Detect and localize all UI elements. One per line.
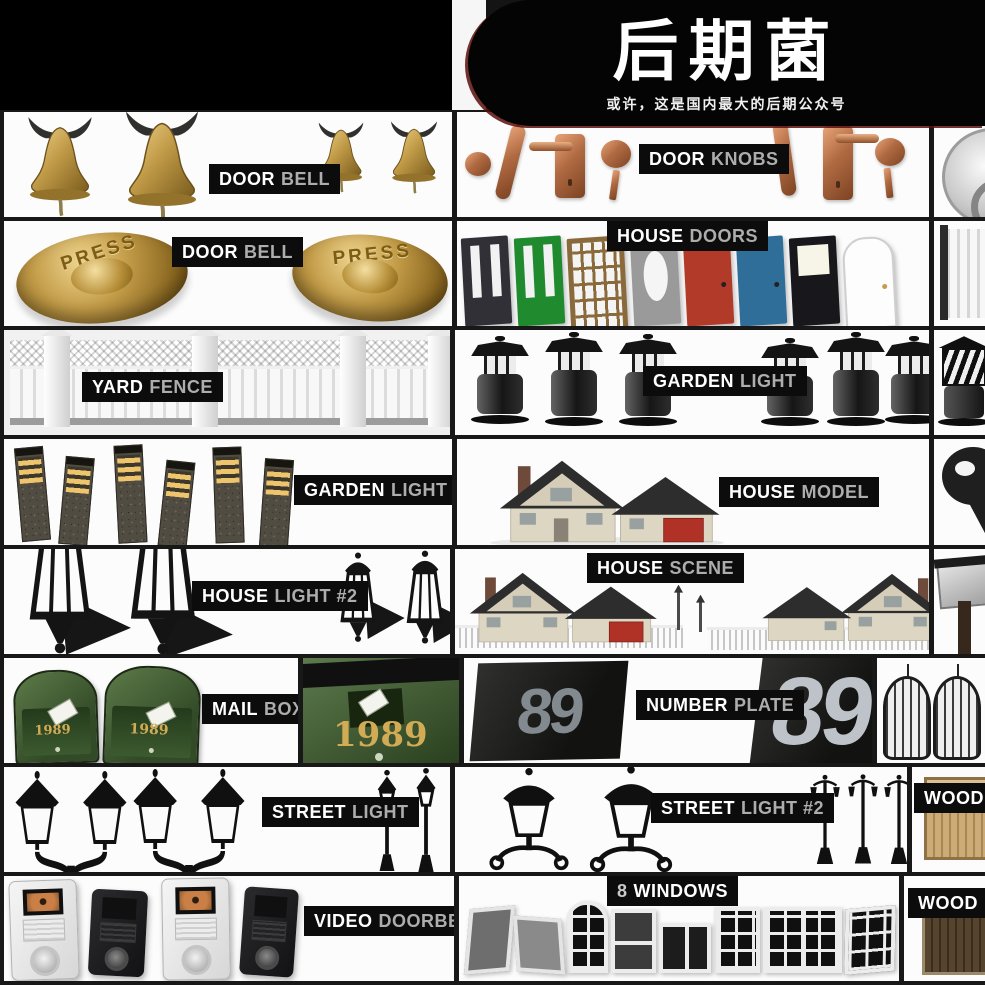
label-light: BELL xyxy=(281,169,330,189)
row-2: PRESS DOORBELL PRESS xyxy=(4,221,985,326)
double-head-post-graphic xyxy=(881,769,907,869)
label-light: LIGHT #3 xyxy=(391,480,452,500)
cell-garden-light: GARDENLIGHT xyxy=(455,330,929,435)
label-house-doors: HOUSEDOORS xyxy=(607,221,768,251)
label-house-scene: HOUSESCENE xyxy=(587,553,744,583)
row-3: YARDFENCE GARDENLIGHT xyxy=(4,330,985,435)
key-graphic xyxy=(609,170,620,201)
cell-mailbox-post-partial xyxy=(934,549,985,654)
house-model-graphic xyxy=(473,441,741,544)
fence-post-cap xyxy=(336,330,370,336)
doorbell-button xyxy=(104,946,129,971)
press-doorbell-graphic: PRESS xyxy=(12,224,192,326)
cell-door-bell-press: PRESS DOORBELL PRESS xyxy=(4,221,452,326)
label-strong: HOUSE xyxy=(597,558,664,578)
label-wooden-gate: WOOD xyxy=(908,888,985,918)
mailbox-keyhole xyxy=(149,748,154,753)
door-knob-graphic xyxy=(465,152,491,176)
cell-house-key-partial xyxy=(934,439,985,544)
knocker-ring xyxy=(971,179,985,217)
cell-video-doorbell: VIDEODOORBELL xyxy=(4,876,454,981)
doorbell-eye-display xyxy=(179,891,212,910)
label-video-doorbell: VIDEODOORBELL xyxy=(304,906,454,936)
garden-bollard-graphic xyxy=(545,332,603,426)
cell-street-light: STREETLIGHT xyxy=(4,767,450,872)
cell-wooden-fence-partial: WOODE xyxy=(912,767,985,872)
page-subtitle: 或许，这是国内最大的后期公众号 xyxy=(607,94,847,114)
label-strong: DOOR xyxy=(219,169,275,189)
mailbox-lid xyxy=(303,658,459,688)
mailbox-keyhole xyxy=(55,747,60,752)
door-handle-dot xyxy=(774,282,779,287)
ornate-lantern-graphic xyxy=(483,767,575,872)
door-rose-graphic xyxy=(875,138,905,166)
label-8-windows: 8WINDOWS xyxy=(607,876,738,906)
door-knocker-graphic xyxy=(942,128,985,217)
label-mail-box: MAILBOX xyxy=(202,694,298,724)
label-door-bell: DOORBELL xyxy=(209,164,340,194)
window-mullion xyxy=(801,911,806,969)
label-strong: YARD xyxy=(92,377,143,397)
hanging-bell-graphic xyxy=(112,112,212,217)
window-grid-double-wide xyxy=(763,907,842,973)
door-handle-dot xyxy=(721,282,726,287)
fence-post xyxy=(428,334,450,427)
cell-house-doors: HOUSEDOORS xyxy=(457,221,929,326)
video-doorbell-graphic xyxy=(239,886,299,978)
mailbox-year: 1989 xyxy=(34,722,71,738)
cell-wooden-gate-partial: WOOD xyxy=(904,876,985,981)
page-title: 后期菌 xyxy=(613,18,841,84)
press-doorbell-graphic: PRESS xyxy=(288,227,452,326)
cell-door-knobs: DOORKNOBS xyxy=(457,112,929,217)
video-doorbell-graphic xyxy=(161,877,231,980)
fence-post xyxy=(340,334,366,427)
label-garden-light: GARDENLIGHT xyxy=(643,366,807,396)
label-strong: STREET xyxy=(661,798,735,818)
cell-house-model: HOUSEMODEL xyxy=(457,439,929,544)
fence-boards xyxy=(10,366,444,420)
scene-lamp-post xyxy=(699,602,702,632)
cell-cage-lanterns-partial xyxy=(877,658,985,763)
doorbell-screen xyxy=(254,895,288,918)
label-door-knobs: DOORKNOBS xyxy=(639,144,789,174)
label-door-bell-press: DOORBELL xyxy=(172,237,303,267)
row-8: VIDEODOORBELL 8WINDOWS xyxy=(4,876,985,981)
cell-house-scene: HOUSESCENE xyxy=(455,549,929,654)
fence-post-cap xyxy=(424,330,450,336)
mailbox-graphic: 1989 xyxy=(12,668,99,763)
keyhole xyxy=(836,181,840,188)
label-strong: GARDEN xyxy=(304,480,385,500)
label-light: LIGHT #2 xyxy=(275,586,358,606)
mailbox-year-large: 1989 xyxy=(333,715,428,755)
label-light: LIGHT #2 xyxy=(741,798,824,818)
window-two-pane xyxy=(611,909,656,973)
video-doorbell-graphic xyxy=(88,888,148,977)
cell-yard-fence: YARDFENCE xyxy=(4,330,450,435)
cell-number-plate: 89 NUMBERPLATE 89 xyxy=(464,658,872,763)
street-lamp-graphic xyxy=(4,769,138,872)
number-plate-graphic: 89 xyxy=(470,660,629,761)
keyhole xyxy=(568,179,572,186)
doorbell-eye-display xyxy=(26,892,59,912)
row-7: STREETLIGHT xyxy=(4,767,985,872)
hanging-bell-graphic xyxy=(16,114,104,217)
label-light: DOORBELL xyxy=(379,911,454,931)
label-street-light-2: STREETLIGHT #2 xyxy=(651,793,834,823)
doorbell-grille xyxy=(100,922,137,943)
label-light: BELL xyxy=(244,242,293,262)
stone-bollard-graphic xyxy=(259,458,294,544)
window-panel-tilted xyxy=(513,915,566,974)
label-light: MODEL xyxy=(802,482,870,502)
fence-post xyxy=(44,334,70,427)
poster-canvas: 后期菌 或许，这是国内最大的后期公众号 DOORBELL xyxy=(0,0,985,985)
cell-garden-light-3: GARDENLIGHT #3 xyxy=(4,439,452,544)
label-strong: WINDOWS xyxy=(634,881,728,901)
window-lineup xyxy=(467,901,895,973)
plate-number: 89 xyxy=(515,678,584,743)
doorbell-button xyxy=(181,945,212,976)
cell-mail-box-closeup: 1989 xyxy=(303,658,459,763)
row-6: 1989 1989 MAILBOX 1989 xyxy=(4,658,985,763)
label-light: KNOBS xyxy=(711,149,779,169)
door-lever-graphic xyxy=(835,134,879,143)
key-graphic xyxy=(883,168,893,199)
door-dark-slotted xyxy=(461,236,512,327)
mailbox-year: 1989 xyxy=(129,721,169,738)
label-wooden-fence: WOODE xyxy=(914,783,985,813)
window-arched xyxy=(566,901,608,973)
label-strong: MAIL xyxy=(212,699,258,719)
cell-picket-gate-partial xyxy=(934,221,985,326)
stone-bollard-graphic xyxy=(113,445,147,544)
cell-mail-box: 1989 1989 MAILBOX xyxy=(4,658,298,763)
label-strong: HOUSE xyxy=(729,482,796,502)
scene-house-graphic xyxy=(755,554,929,650)
picket-gate-graphic xyxy=(940,229,985,318)
header-black-panel xyxy=(0,0,452,110)
label-strong: HOUSE xyxy=(202,586,269,606)
label-light: BOX xyxy=(264,699,298,719)
window-double-dark xyxy=(659,923,711,973)
hanging-bell-graphic xyxy=(382,118,446,196)
cell-street-light-2: STREETLIGHT #2 xyxy=(455,767,907,872)
mailbox-graphic: 1989 xyxy=(102,664,201,763)
label-yard-fence: YARDFENCE xyxy=(82,372,223,402)
label-light: PLATE xyxy=(734,695,794,715)
row-5: HOUSELIGHT #2 xyxy=(4,549,985,654)
label-strong: DOOR xyxy=(649,149,705,169)
door-green-slotted xyxy=(514,236,565,327)
door-lever-plate-graphic xyxy=(555,134,585,198)
stone-bollard-graphic xyxy=(158,460,196,544)
cell-door-knocker-partial xyxy=(934,112,985,217)
label-house-light-2: HOUSELIGHT #2 xyxy=(192,581,368,611)
doorbell-grille xyxy=(251,920,287,942)
doorbell-screen xyxy=(23,888,63,916)
cell-louver-bollards-partial xyxy=(934,330,985,435)
stone-bollard-graphic xyxy=(212,447,244,544)
mailbox-keyhole xyxy=(375,753,383,761)
label-street-light: STREETLIGHT xyxy=(262,797,419,827)
doorbell-screen xyxy=(102,897,137,919)
cell-windows: 8WINDOWS xyxy=(459,876,899,981)
wall-lantern-graphic xyxy=(388,549,450,653)
garden-bollard-graphic xyxy=(827,332,885,426)
label-light: LIGHT xyxy=(352,802,409,822)
window-panel-tilted xyxy=(464,905,515,975)
doorbell-button xyxy=(254,945,280,971)
cage-lantern-graphic xyxy=(883,676,931,760)
door-black-toplite xyxy=(789,236,840,327)
door-handle-dot xyxy=(882,284,887,289)
yard-fence-graphic xyxy=(10,340,444,425)
window-sash-bar xyxy=(615,941,652,945)
label-light: LIGHT xyxy=(740,371,797,391)
fence-base xyxy=(10,418,444,425)
label-strong: HOUSE xyxy=(617,226,684,246)
cell-door-bell-hanging: DOORBELL xyxy=(4,112,452,217)
label-strong: STREET xyxy=(272,802,346,822)
fence-post-cap xyxy=(188,330,222,336)
cell-house-light-2: HOUSELIGHT #2 xyxy=(4,549,450,654)
window-mullion xyxy=(685,927,689,969)
row-1: DOORBELL xyxy=(4,112,985,217)
label-partial: WOODE xyxy=(924,788,985,808)
mailbox-letter xyxy=(358,688,389,716)
label-light: SCENE xyxy=(670,558,735,578)
label-garden-light-3: GARDENLIGHT #3 xyxy=(294,475,452,505)
row-4: GARDENLIGHT #3 xyxy=(4,439,985,544)
label-strong: NUMBER xyxy=(646,695,728,715)
mailbox-pole xyxy=(958,601,971,654)
label-strong: VIDEO xyxy=(314,911,373,931)
doorbell-button xyxy=(30,945,61,976)
label-number-plate: NUMBERPLATE xyxy=(636,690,804,720)
label-house-model: HOUSEMODEL xyxy=(719,477,879,507)
door-rose-graphic xyxy=(601,140,631,168)
key-shaft xyxy=(965,489,985,544)
garden-bollard-graphic xyxy=(885,336,929,424)
street-lamp-graphic xyxy=(122,767,256,872)
header-badge: 后期菌 或许，这是国内最大的后期公众号 xyxy=(468,0,985,126)
window-grid-3x3 xyxy=(714,907,761,973)
label-prefix: 8 xyxy=(617,881,628,901)
louver-bollard-graphic xyxy=(938,336,985,426)
video-doorbell-graphic xyxy=(8,879,79,981)
garden-bollard-graphic xyxy=(471,336,529,424)
door-handle-graphic xyxy=(494,123,527,200)
window-grid-tilted xyxy=(844,905,895,975)
doorbell-grille xyxy=(23,919,65,942)
doorbell-screen xyxy=(175,887,215,915)
cage-lantern-graphic xyxy=(933,676,981,760)
label-strong: GARDEN xyxy=(653,371,734,391)
label-light: DOORS xyxy=(690,226,759,246)
door-lever-plate-graphic xyxy=(823,126,853,200)
label-light: FENCE xyxy=(149,377,213,397)
label-strong: DOOR xyxy=(182,242,238,262)
gate-post xyxy=(940,225,948,320)
label-partial: WOOD xyxy=(918,893,978,913)
door-white-arched xyxy=(842,235,898,326)
door-lever-graphic xyxy=(529,142,573,151)
doorbell-grille xyxy=(175,918,217,941)
fence-post-cap xyxy=(40,330,74,336)
thumbnail-grid: DOORBELL xyxy=(0,110,985,985)
double-head-post-graphic xyxy=(845,767,881,870)
scene-lamp-post xyxy=(677,592,680,630)
stone-bollard-graphic xyxy=(14,446,51,542)
stone-bollard-graphic xyxy=(58,456,95,544)
